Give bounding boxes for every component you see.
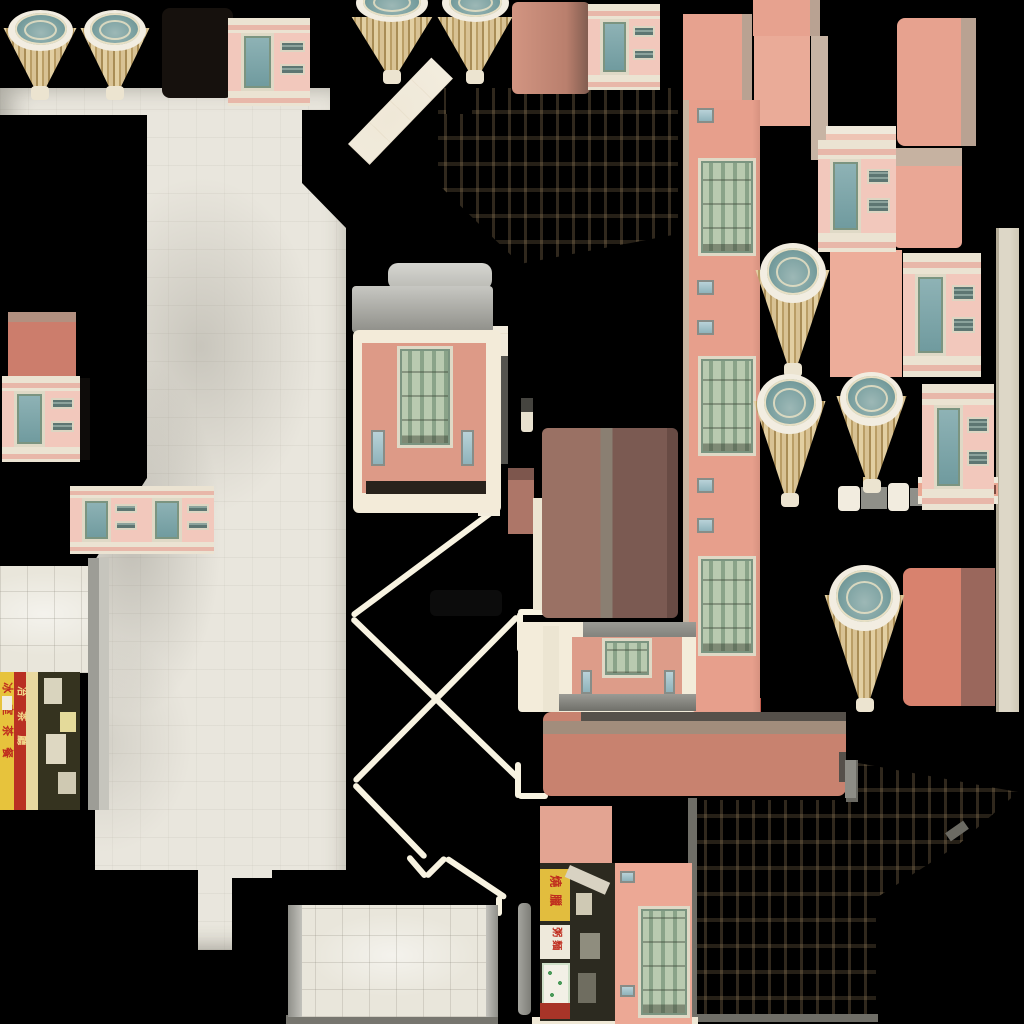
salmon-block bbox=[830, 250, 902, 377]
pink-facade-window-patch bbox=[70, 486, 142, 554]
louvre-vent bbox=[967, 417, 989, 433]
grey-edge bbox=[688, 1014, 878, 1022]
cream-band bbox=[588, 75, 660, 90]
pink-stripe bbox=[922, 498, 994, 504]
cone-knob bbox=[31, 86, 49, 100]
left-border bbox=[288, 905, 302, 1017]
art-deco-cone-ornament bbox=[752, 374, 827, 507]
pink-stripe bbox=[140, 491, 214, 495]
red-chip bbox=[540, 1003, 570, 1019]
cream-band bbox=[228, 91, 310, 106]
marble-plaza-bottom-right bbox=[688, 760, 1020, 1022]
pink-stripe bbox=[818, 149, 896, 155]
sign-glyph: 麵 bbox=[550, 930, 561, 960]
red-sign-column: 冶茶廳 bbox=[14, 672, 26, 810]
dome-tracery bbox=[855, 385, 888, 412]
cone-knob bbox=[383, 70, 401, 84]
cut-outline-line bbox=[352, 782, 428, 860]
louvre-vent bbox=[633, 49, 655, 60]
sticker-note bbox=[44, 678, 62, 704]
louvre-vent bbox=[867, 169, 890, 184]
louvre-vent bbox=[51, 421, 74, 432]
art-deco-cone-ornament bbox=[823, 565, 906, 712]
sticker-note bbox=[46, 734, 66, 764]
pink-facade-window-patch bbox=[818, 140, 896, 252]
sign-glyph: 冶 bbox=[15, 685, 26, 697]
small-pole bbox=[521, 398, 533, 432]
louvre-vent bbox=[187, 521, 209, 530]
faint-dark-rect bbox=[430, 590, 502, 616]
center-facade-window bbox=[397, 346, 453, 448]
green-window-unit bbox=[241, 33, 274, 91]
pink-facade-window-patch bbox=[588, 4, 660, 90]
cream-band bbox=[922, 384, 994, 405]
shop-interior bbox=[38, 672, 80, 810]
pink-stripe bbox=[588, 11, 660, 16]
small-grey-window bbox=[461, 430, 474, 466]
sign-glyph: 冰 bbox=[1, 681, 13, 695]
small-blue-window bbox=[697, 280, 714, 295]
dome-ring bbox=[8, 10, 73, 51]
dome-ring bbox=[760, 243, 826, 303]
cream-band bbox=[140, 486, 214, 498]
pink-stripe bbox=[588, 82, 660, 87]
cream-band bbox=[70, 486, 142, 498]
white-chip bbox=[2, 696, 12, 710]
pink-stripe bbox=[2, 454, 80, 459]
sticker-note bbox=[58, 772, 76, 794]
shaded-salmon-block bbox=[512, 2, 590, 94]
grey-strip bbox=[88, 558, 99, 810]
grey-pole bbox=[518, 903, 531, 1015]
green-window-unit bbox=[698, 556, 756, 656]
right-edge-tan-strip bbox=[996, 228, 1019, 712]
tile-block-bottom bbox=[288, 905, 498, 1017]
dome-ring bbox=[84, 10, 146, 51]
marble-top-center bbox=[348, 84, 680, 266]
pink-stripe bbox=[70, 491, 142, 495]
pink-stripe bbox=[903, 262, 981, 268]
gold-rib-fan bbox=[436, 17, 514, 76]
pink-stripe bbox=[140, 547, 214, 551]
green-window-unit bbox=[830, 159, 861, 233]
cream-band bbox=[903, 253, 981, 274]
salmon-block-layer bbox=[810, 0, 820, 36]
white-sign: 粥麵 bbox=[540, 925, 570, 959]
salmon-block bbox=[897, 18, 976, 146]
salmon-block-dark-edge-layer bbox=[961, 568, 995, 706]
cone-knob bbox=[856, 698, 874, 712]
salmon-block-layer bbox=[961, 18, 976, 146]
small-brown-block bbox=[508, 468, 534, 534]
art-deco-cone-ornament bbox=[79, 10, 151, 100]
grey-tab bbox=[845, 760, 856, 798]
green-window-unit bbox=[82, 498, 111, 542]
green-window-unit bbox=[152, 498, 182, 542]
sign-glyph: 茶 bbox=[15, 710, 26, 722]
salmon-block-dark-edge bbox=[903, 568, 995, 706]
machine-block bbox=[580, 933, 600, 959]
small-brown-block-layer bbox=[508, 468, 534, 480]
pink-stripe bbox=[2, 383, 80, 388]
white-tile-block bbox=[0, 566, 88, 673]
long-salmon-strip-layer bbox=[581, 712, 846, 721]
cream-band bbox=[70, 542, 142, 554]
gold-rib-fan bbox=[350, 17, 434, 76]
louvre-vent bbox=[115, 521, 137, 530]
pink-stripe bbox=[70, 547, 142, 551]
sign-glyph: 臘 bbox=[549, 885, 562, 915]
cream-band bbox=[903, 356, 981, 377]
salmon-block-layer bbox=[894, 148, 962, 166]
cream-band bbox=[818, 140, 896, 159]
salmon-block bbox=[754, 36, 810, 126]
salmon-block bbox=[683, 14, 752, 106]
louvre-vent bbox=[51, 398, 74, 409]
small-blue-window bbox=[664, 670, 675, 694]
cut-outline-line bbox=[518, 793, 548, 799]
green-window-unit bbox=[915, 274, 946, 356]
small-pole-layer bbox=[521, 398, 533, 412]
louvre-vent bbox=[280, 64, 305, 75]
cream-band bbox=[2, 447, 80, 462]
louvre-vent bbox=[952, 285, 975, 301]
green-window-unit bbox=[698, 158, 756, 256]
dome-ring bbox=[829, 565, 900, 631]
sign-glyph: 餐 bbox=[1, 745, 13, 759]
yellow-sign-column: 冰室茶餐 bbox=[0, 672, 14, 810]
pink-stripe bbox=[228, 25, 310, 30]
awning-bar bbox=[352, 286, 493, 333]
awning-diagonal bbox=[565, 865, 610, 895]
cream-band bbox=[922, 489, 994, 510]
machine-block bbox=[578, 973, 596, 1003]
pink-facade-window-patch bbox=[922, 384, 994, 510]
pale-sign-column bbox=[26, 672, 38, 810]
salmon-facade-bottom bbox=[615, 863, 692, 1024]
small-teal-window bbox=[620, 985, 635, 997]
cone-knob bbox=[466, 70, 484, 84]
salmon-block bbox=[8, 312, 76, 376]
texture-atlas-sheet: 冰室茶餐冶茶廳燒臘粥麵 bbox=[0, 0, 1024, 1024]
grey-top-bar bbox=[583, 622, 696, 637]
cream-band bbox=[588, 4, 660, 19]
small-facade-window bbox=[602, 638, 652, 678]
right-border bbox=[486, 905, 498, 1017]
cut-outline-line bbox=[444, 856, 507, 901]
dome-ring bbox=[757, 374, 822, 434]
pink-stripe bbox=[903, 365, 981, 371]
salmon-block bbox=[894, 148, 962, 248]
pink-facade-window-patch bbox=[903, 253, 981, 377]
small-grey-window bbox=[371, 430, 385, 466]
louvre-vent bbox=[633, 26, 655, 37]
storefront-texture-left: 冰室茶餐冶茶廳 bbox=[0, 672, 80, 810]
pink-stripe bbox=[922, 393, 994, 399]
storefront-texture-bottom: 燒臘粥麵 bbox=[540, 863, 615, 1021]
pink-stripe bbox=[228, 98, 310, 103]
grey-strip bbox=[99, 558, 109, 810]
art-deco-cone-ornament bbox=[2, 10, 78, 100]
dark-awning-block bbox=[162, 8, 233, 98]
cream-band bbox=[2, 376, 80, 391]
salmon-block bbox=[753, 0, 820, 36]
salmon-block bbox=[540, 806, 612, 866]
shadow-band bbox=[366, 481, 486, 494]
dome-ring bbox=[840, 372, 903, 426]
notch-cut bbox=[446, 86, 472, 114]
machine-block bbox=[576, 893, 592, 915]
art-deco-cone-ornament bbox=[436, 0, 514, 84]
salmon-block-layer bbox=[8, 312, 76, 322]
grey-bottom-bar bbox=[558, 694, 696, 711]
pink-facade-window-patch bbox=[140, 486, 214, 554]
green-window-unit bbox=[600, 19, 629, 75]
sign-glyph: 茶 bbox=[1, 724, 13, 738]
cone-knob bbox=[781, 493, 799, 507]
art-deco-cone-ornament bbox=[350, 0, 434, 84]
cream-band bbox=[228, 18, 310, 33]
long-salmon-strip bbox=[543, 712, 846, 796]
small-blue-window bbox=[581, 670, 592, 694]
small-teal-window bbox=[620, 871, 635, 883]
sticker-note bbox=[60, 712, 76, 732]
green-window-unit bbox=[934, 405, 963, 489]
louvre-vent bbox=[187, 504, 209, 513]
small-blue-window bbox=[697, 518, 714, 533]
pink-facade-window-patch bbox=[2, 376, 80, 462]
green-window-unit bbox=[698, 356, 756, 456]
art-deco-cone-ornament bbox=[835, 372, 908, 493]
small-blue-window bbox=[697, 320, 714, 335]
louvre-vent bbox=[967, 450, 989, 466]
tall-salmon-facade-strip bbox=[683, 100, 760, 712]
art-deco-cone-ornament bbox=[754, 243, 831, 377]
cream-band bbox=[140, 542, 214, 554]
small-blue-window bbox=[697, 478, 714, 493]
louvre-vent bbox=[280, 41, 305, 52]
cream-strip bbox=[543, 626, 559, 712]
dark-brown-door-block bbox=[542, 428, 678, 618]
cream-strip bbox=[533, 498, 542, 610]
sign-glyph: 廳 bbox=[15, 734, 26, 746]
small-blue-window bbox=[697, 108, 714, 123]
cone-knob bbox=[106, 86, 124, 100]
cone-knob bbox=[863, 479, 881, 493]
green-window-unit bbox=[638, 906, 690, 1018]
pink-facade-window-patch bbox=[228, 18, 310, 106]
louvre-vent bbox=[952, 317, 975, 333]
green-window-unit bbox=[14, 391, 45, 447]
louvre-vent bbox=[115, 504, 137, 513]
louvre-vent bbox=[867, 198, 890, 213]
dome-tracery bbox=[846, 581, 883, 614]
salmon-block-layer bbox=[742, 14, 752, 106]
long-salmon-strip-layer bbox=[543, 721, 846, 734]
